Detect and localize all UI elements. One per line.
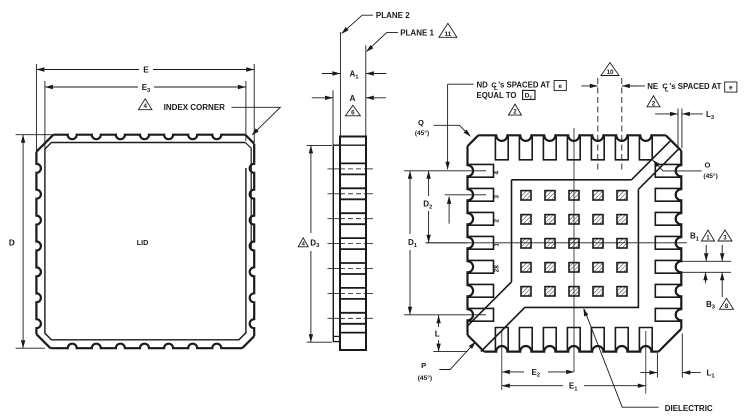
svg-text:2: 2 [652, 100, 656, 107]
svg-text:(45°): (45°) [415, 129, 429, 137]
svg-text:P: P [421, 361, 426, 370]
svg-text:4: 4 [494, 171, 501, 175]
svg-text:A: A [349, 94, 355, 103]
svg-text:L: L [665, 86, 669, 93]
svg-text:EQUAL TO: EQUAL TO [477, 91, 517, 100]
svg-text:O: O [705, 160, 711, 169]
svg-text:'s SPACED AT: 's SPACED AT [669, 82, 721, 91]
svg-text:e: e [729, 84, 733, 91]
svg-text:4: 4 [143, 103, 147, 110]
svg-text:INDEX CORNER: INDEX CORNER [164, 103, 226, 112]
svg-text:8: 8 [725, 303, 729, 310]
svg-text:3: 3 [723, 235, 727, 242]
svg-text:1: 1 [494, 243, 501, 247]
svg-text:'s SPACED AT: 's SPACED AT [498, 81, 550, 90]
svg-text:NE: NE [647, 82, 658, 91]
svg-text:PLANE 2: PLANE 2 [376, 11, 410, 20]
svg-text:ND: ND [477, 81, 489, 90]
svg-text:2: 2 [513, 109, 517, 116]
svg-text:DIELECTRIC: DIELECTRIC [665, 404, 713, 413]
svg-text:(45°): (45°) [418, 374, 432, 382]
svg-text:E: E [143, 66, 149, 75]
svg-text:1: 1 [706, 235, 710, 242]
svg-text:10: 10 [606, 69, 614, 76]
svg-text:6: 6 [351, 109, 355, 116]
svg-text:e: e [558, 83, 562, 90]
svg-text:(45°): (45°) [703, 172, 717, 180]
svg-text:3: 3 [494, 195, 501, 199]
svg-text:11: 11 [445, 31, 452, 38]
svg-text:PLANE 1: PLANE 1 [400, 28, 434, 37]
svg-text:D: D [9, 238, 15, 247]
svg-text:LID: LID [137, 238, 149, 247]
svg-text:Q: Q [418, 118, 424, 127]
svg-text:2: 2 [494, 219, 501, 223]
svg-text:28: 28 [494, 265, 501, 273]
svg-text:L: L [435, 330, 440, 339]
